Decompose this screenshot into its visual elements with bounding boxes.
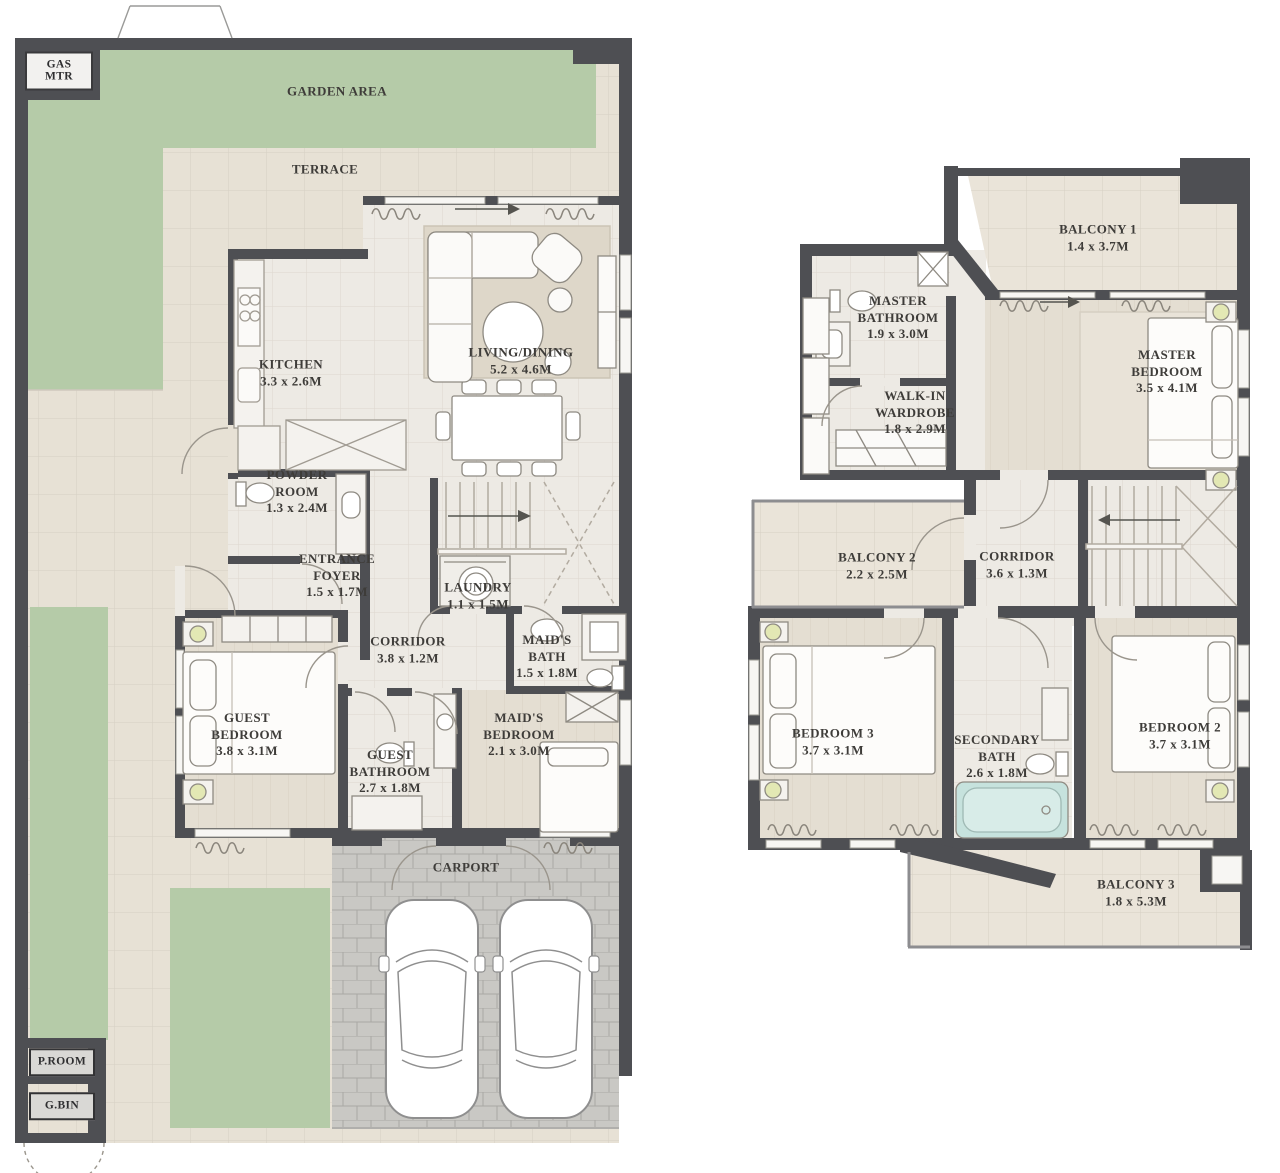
room-name: TERRACE — [255, 162, 395, 179]
room-name: ENTRANCE FOYER — [282, 551, 392, 584]
room-dims: 2.6 x 1.8M — [937, 765, 1057, 782]
room-dims: 5.2 x 4.6M — [436, 361, 606, 378]
floor-plan-canvas: GAS MTR P.ROOM G.BIN GARDEN AREA TERRACE… — [0, 0, 1280, 1173]
room-name: BEDROOM 2 — [1120, 719, 1240, 736]
room-label-maids-bedroom: MAID'S BEDROOM 2.1 x 3.0M — [461, 710, 577, 760]
room-dims: 3.3 x 2.6M — [216, 373, 366, 390]
room-label-guest-bedroom: GUEST BEDROOM 3.8 x 3.1M — [192, 710, 302, 760]
room-name: CORRIDOR — [952, 548, 1082, 565]
room-dims: 1.5 x 1.7M — [282, 584, 392, 601]
room-label-walk-in-wardrobe: WALK-IN WARDROBE 1.8 x 2.9M — [850, 388, 980, 438]
room-dims: 3.6 x 1.3M — [952, 565, 1082, 582]
room-label-powder-room: POWDER ROOM 1.3 x 2.4M — [254, 467, 340, 517]
room-label-carport: CARPORT — [396, 860, 536, 877]
room-label-corridor: CORRIDOR 3.8 x 1.2M — [348, 633, 468, 666]
room-label-secondary-bath: SECONDARY BATH 2.6 x 1.8M — [937, 732, 1057, 782]
room-name: MAID'S BATH — [510, 632, 584, 665]
room-label-maids-bath: MAID'S BATH 1.5 x 1.8M — [510, 632, 584, 682]
room-name: POWDER ROOM — [254, 467, 340, 500]
room-name: GUEST BATHROOM — [330, 747, 450, 780]
room-label-balcony-3: BALCONY 3 1.8 x 5.3M — [1061, 876, 1211, 909]
room-label-balcony-2: BALCONY 2 2.2 x 2.5M — [807, 549, 947, 582]
room-dims: 2.1 x 3.0M — [461, 743, 577, 760]
room-name: BALCONY 2 — [807, 549, 947, 566]
room-label-laundry: LAUNDRY 1.1 x 1.5M — [428, 579, 528, 612]
room-name: CORRIDOR — [348, 633, 468, 650]
room-name: GUEST BEDROOM — [192, 710, 302, 743]
room-name: BEDROOM 3 — [768, 725, 898, 742]
room-name: MASTER BATHROOM — [840, 293, 956, 326]
room-label-garden-area: GARDEN AREA — [227, 84, 447, 101]
room-dims: 1.9 x 3.0M — [840, 326, 956, 343]
room-name: LAUNDRY — [428, 579, 528, 596]
room-name: BALCONY 3 — [1061, 876, 1211, 893]
room-name: BALCONY 1 — [1013, 221, 1183, 238]
room-dims: 1.4 x 3.7M — [1013, 238, 1183, 255]
room-label-balcony-1: BALCONY 1 1.4 x 3.7M — [1013, 221, 1183, 254]
room-name: CARPORT — [396, 860, 536, 877]
room-dims: 2.2 x 2.5M — [807, 566, 947, 583]
pump-room-badge: P.ROOM — [29, 1048, 95, 1076]
room-label-master-bedroom: MASTER BEDROOM 3.5 x 4.1M — [1109, 347, 1225, 397]
room-dims: 1.5 x 1.8M — [510, 665, 584, 682]
room-name: MAID'S BEDROOM — [461, 710, 577, 743]
gas-meter-badge: GAS MTR — [25, 52, 93, 91]
room-name: LIVING/DINING — [436, 344, 606, 361]
room-dims: 1.1 x 1.5M — [428, 596, 528, 613]
room-label-living-dining: LIVING/DINING 5.2 x 4.6M — [436, 344, 606, 377]
room-dims: 3.8 x 3.1M — [192, 743, 302, 760]
room-dims: 3.8 x 1.2M — [348, 650, 468, 667]
room-dims: 3.5 x 4.1M — [1109, 380, 1225, 397]
room-label-corridor-first: CORRIDOR 3.6 x 1.3M — [952, 548, 1082, 581]
room-name: MASTER BEDROOM — [1109, 347, 1225, 380]
room-label-master-bathroom: MASTER BATHROOM 1.9 x 3.0M — [840, 293, 956, 343]
room-label-entrance-foyer: ENTRANCE FOYER 1.5 x 1.7M — [282, 551, 392, 601]
room-label-kitchen: KITCHEN 3.3 x 2.6M — [216, 356, 366, 389]
room-label-guest-bathroom: GUEST BATHROOM 2.7 x 1.8M — [330, 747, 450, 797]
room-label-bedroom-3: BEDROOM 3 3.7 x 3.1M — [768, 725, 898, 758]
room-dims: 1.3 x 2.4M — [254, 500, 340, 517]
room-dims: 2.7 x 1.8M — [330, 780, 450, 797]
room-dims: 3.7 x 3.1M — [768, 742, 898, 759]
room-dims: 3.7 x 3.1M — [1120, 736, 1240, 753]
garbage-bin-badge: G.BIN — [29, 1092, 95, 1120]
room-name: KITCHEN — [216, 356, 366, 373]
room-name: GARDEN AREA — [227, 84, 447, 101]
room-label-terrace: TERRACE — [255, 162, 395, 179]
room-name: WALK-IN WARDROBE — [850, 388, 980, 421]
floor-plan-svg — [0, 0, 1280, 1173]
room-dims: 1.8 x 2.9M — [850, 421, 980, 438]
room-dims: 1.8 x 5.3M — [1061, 893, 1211, 910]
room-label-bedroom-2: BEDROOM 2 3.7 x 3.1M — [1120, 719, 1240, 752]
room-name: SECONDARY BATH — [937, 732, 1057, 765]
